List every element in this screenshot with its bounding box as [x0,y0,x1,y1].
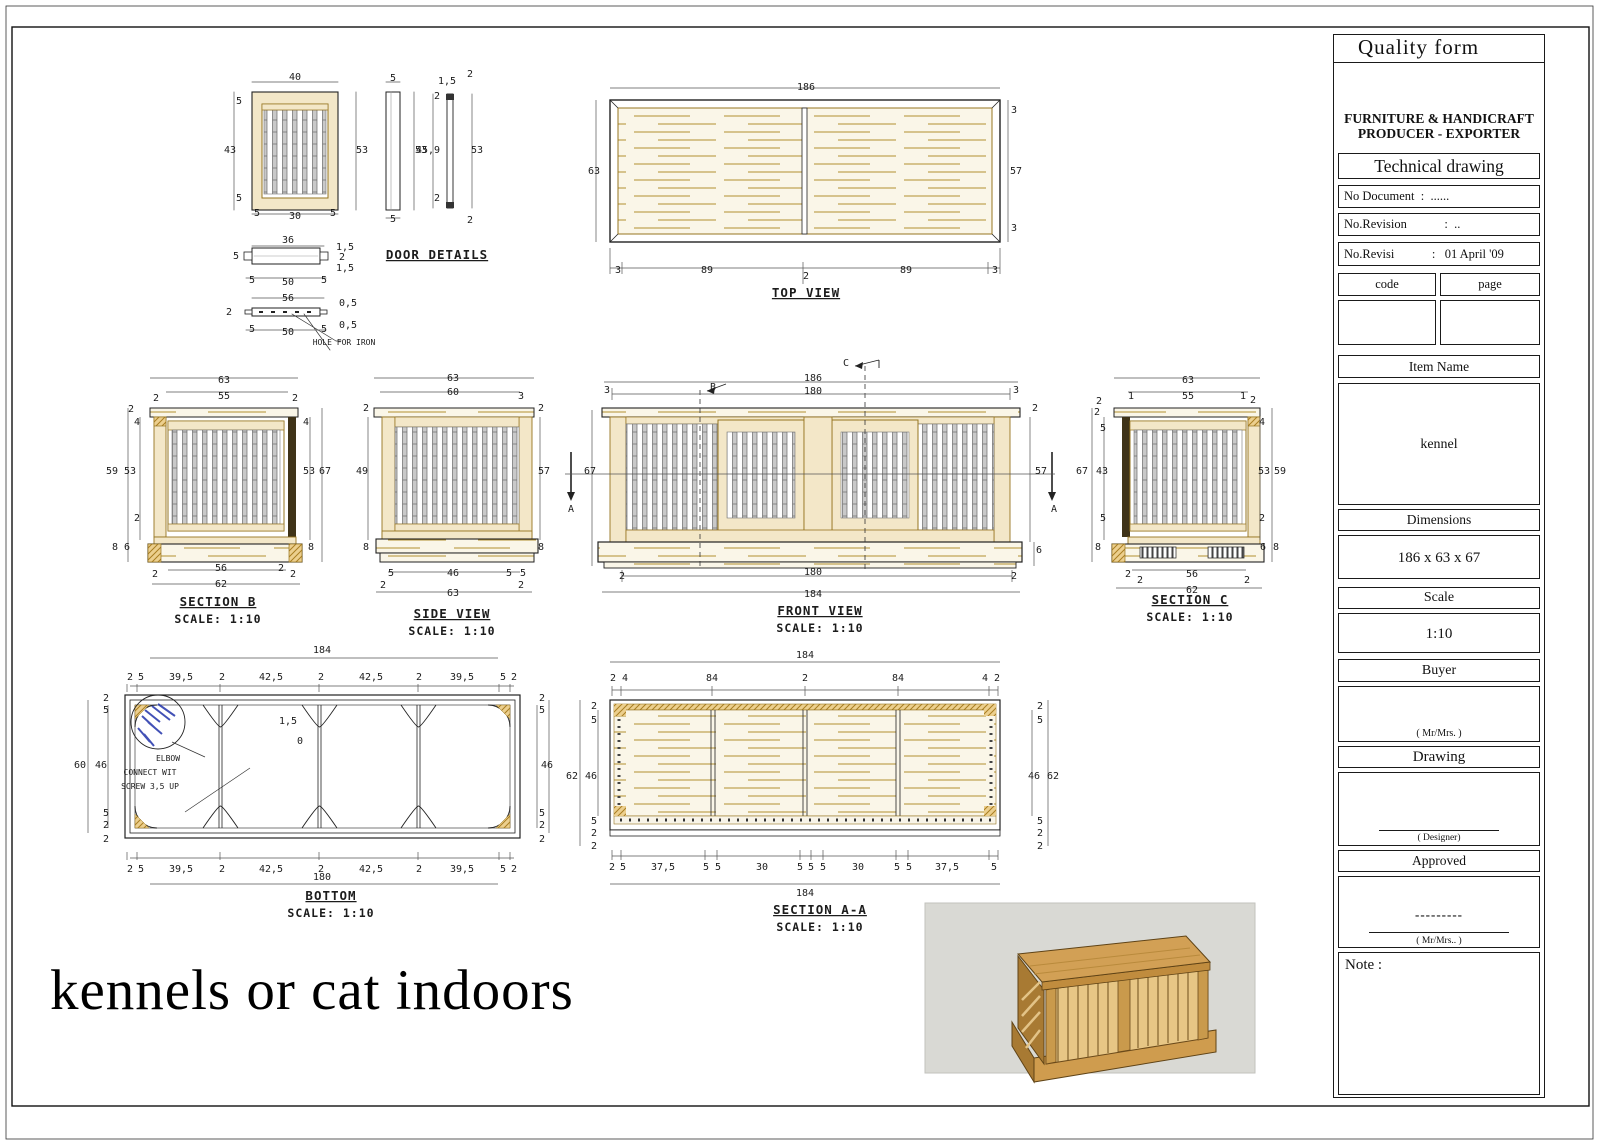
section-a-a-label: 30 [852,862,864,873]
side-view-label: SCALE: 1:10 [408,624,495,638]
no-revisi-row: No.Revisi : 01 April '09 [1338,242,1540,266]
bottom-label: 39,5 [450,864,474,875]
bottom-label: SCALE: 1:10 [287,906,374,920]
section-c-label: 2 [1094,407,1100,418]
title-block-header: Quality form [1334,35,1544,63]
door-details-label: 5 [236,96,242,107]
title-block: Quality form FURNITURE & HANDICRAFT PROD… [1333,34,1545,1098]
section-b-label: 6 [124,542,130,553]
side-view-label: 63 [447,373,459,384]
front-view-label: 186 [804,373,822,384]
code-label: code [1338,273,1436,296]
section-b-label: 2 [153,393,159,404]
bottom-label: 39,5 [450,672,474,683]
door-details-label: 43 [224,145,236,156]
section-b-label: SECTION B [180,594,257,609]
section-a-a-label: 5 [808,862,814,873]
section-b-label: 2 [128,404,134,415]
no-document-row: No Document : ...... [1338,185,1540,208]
section-a-a-label: 2 [994,673,1000,684]
door-details-label: 2 [434,193,440,204]
code-value-cell [1338,300,1436,345]
company-line1: FURNITURE & HANDICRAFT [1334,111,1544,126]
top-view-label: TOP VIEW [772,285,840,300]
section-a-a-drawing [580,662,1048,884]
side-view-drawing [368,378,540,592]
section-a-a-label: 5 [620,862,626,873]
top-view-label: 3 [615,265,621,276]
side-view-label: 5 [388,568,394,579]
door-details-label: 56 [282,293,294,304]
section-a-a-label: 5 [797,862,803,873]
section-a-a-label: 5 [820,862,826,873]
door-details-label: 2 [467,69,473,80]
section-a-a-label: 5 [715,862,721,873]
front-view-label: 3 [604,385,610,396]
approved-signature-line [1369,932,1509,933]
section-b-label: 2 [278,563,284,574]
section-b-label: 55 [218,391,230,402]
door-details-label: 5 [330,208,336,219]
section-a-a-label: 5 [591,715,597,726]
door-details-label: 2 [434,91,440,102]
bottom-label: 2 [103,820,109,831]
door-details-label: 5 [249,324,255,335]
bottom-label: 2 [511,672,517,683]
bottom-label: 2 [127,672,133,683]
bottom-label: SCREW 3,5 UP [121,782,179,791]
section-a-a-label: 184 [796,888,814,899]
bottom-label: 5 [103,808,109,819]
top-view-label: 3 [1011,105,1017,116]
side-view-label: 57 [538,466,550,477]
section-b-label: 2 [292,393,298,404]
front-view-label: 184 [804,589,822,600]
section-c-label: 4 [1259,417,1265,428]
door-details-label: DOOR DETAILS [386,247,488,262]
section-b-label: 2 [152,569,158,580]
section-c-label: SCALE: 1:10 [1146,610,1233,624]
section-b-label: 2 [290,569,296,580]
approved-hint: ( Mr/Mrs.. ) [1339,936,1539,946]
drawing-cell: ( Designer) [1338,772,1540,846]
bottom-label: 5 [500,864,506,875]
front-view-label: 3 [1013,385,1019,396]
door-details-label: 1,5 [336,263,354,274]
front-view-label: FRONT VIEW [777,603,862,618]
side-view-label: 2 [380,580,386,591]
side-view-label: 8 [538,542,544,553]
front-view-label: A [568,504,574,515]
section-a-a-label: 2 [1037,841,1043,852]
item-name-value: kennel [1338,383,1540,505]
approved-dashes: --------- [1339,907,1539,923]
door-details-label: 0,5 [339,320,357,331]
section-c-label: 56 [1186,569,1198,580]
door-details-label: 45,9 [416,145,440,156]
section-b-label: SCALE: 1:10 [174,612,261,626]
section-b-label: 53 [124,466,136,477]
section-a-a-label: 30 [756,862,768,873]
bottom-label: 5 [138,864,144,875]
front-view-label: 180 [804,567,822,578]
section-b-drawing [128,378,322,584]
door-details-label: 2 [467,215,473,226]
front-view-label: A [1051,504,1057,515]
section-b-label: 8 [308,542,314,553]
section-a-a-label: 46 [585,771,597,782]
top-view-label: 3 [1011,223,1017,234]
bottom-label: 42,5 [259,864,283,875]
section-c-label: 67 [1076,466,1088,477]
door-details-label: HOLE FOR IRON [313,338,376,347]
section-a-a-label: 62 [1047,771,1059,782]
bottom-label: CONNECT WIT [124,768,177,777]
bottom-label: 39,5 [169,672,193,683]
section-c-label: 62 [1186,585,1198,596]
section-b-label: 67 [319,466,331,477]
section-c-label: 53 [1258,466,1270,477]
section-c-label: 8 [1095,542,1101,553]
section-c-label: 1 [1240,391,1246,402]
bottom-label: 1,5 [279,716,297,727]
section-b-label: 8 [112,542,118,553]
approved-label: Approved [1338,850,1540,872]
section-c-label: 2 [1125,569,1131,580]
section-b-label: 2 [134,513,140,524]
bottom-label: 2 [539,820,545,831]
section-a-a-label: 2 [591,841,597,852]
door-details-label: 2 [226,307,232,318]
section-c-label: 2 [1259,513,1265,524]
door-details-label: 5 [233,251,239,262]
bottom-label: ELBOW [156,754,180,763]
top-view-label: 89 [701,265,713,276]
side-view-label: 5 [520,568,526,579]
bottom-label: 2 [127,864,133,875]
side-view-label: 2 [518,580,524,591]
bottom-label: 5 [138,672,144,683]
buyer-hint: ( Mr/Mrs. ) [1339,728,1539,739]
bottom-label: 2 [219,864,225,875]
bottom-label: 46 [541,760,553,771]
front-view-label: C [843,358,849,369]
technical-drawing-label: Technical drawing [1338,153,1540,179]
company-name: FURNITURE & HANDICRAFT PRODUCER - EXPORT… [1334,111,1544,141]
section-c-label: 5 [1100,513,1106,524]
section-a-a-label: 5 [1037,715,1043,726]
section-a-a-label: 184 [796,650,814,661]
drawing-sheet: DOOR DETAILS40543553530555351,52245,9532… [0,0,1599,1145]
drawing-label: Drawing [1338,746,1540,768]
side-view-label: 63 [447,588,459,599]
bottom-label: 46 [95,760,107,771]
section-a-a-label: 2 [1037,828,1043,839]
scale-value: 1:10 [1338,613,1540,653]
side-view-label: 49 [356,466,368,477]
section-a-a-label: 5 [1037,816,1043,827]
section-a-a-label: 5 [591,816,597,827]
door-details-label: 36 [282,235,294,246]
no-revision-row: No.Revision : .. [1338,213,1540,236]
bottom-label: 2 [511,864,517,875]
door-details-label: 5 [321,324,327,335]
front-view-label: 2 [1011,571,1017,582]
company-line2: PRODUCER - EXPORTER [1334,126,1544,141]
bottom-label: 42,5 [259,672,283,683]
bottom-label: 2 [416,672,422,683]
section-a-a-label: 46 [1028,771,1040,782]
bottom-label: 2 [103,834,109,845]
top-view-label: 2 [803,271,809,282]
door-details-label: 50 [282,327,294,338]
section-a-a-label: 37,5 [651,862,675,873]
section-a-a-label: 5 [894,862,900,873]
bottom-label: 42,5 [359,864,383,875]
section-c-label: 5 [1100,423,1106,434]
section-a-a-label: SECTION A-A [773,902,867,917]
section-a-a-label: 5 [703,862,709,873]
bottom-label: 5 [103,705,109,716]
section-a-a-label: 5 [906,862,912,873]
section-b-label: 56 [215,563,227,574]
front-view-label: 2 [619,571,625,582]
door-details-view [234,82,472,350]
kennel-3d-render [925,903,1255,1082]
door-details-label: 53 [356,145,368,156]
scale-label: Scale [1338,587,1540,609]
top-view-drawing [596,88,1008,284]
designer-signature-line [1379,830,1499,831]
page-label: page [1440,273,1540,296]
buyer-label: Buyer [1338,659,1540,682]
bottom-label: 180 [313,872,331,883]
section-c-label: 8 [1273,542,1279,553]
bottom-label: 184 [313,645,331,656]
section-c-label: 2 [1137,575,1143,586]
front-view-label: 6 [1036,545,1042,556]
section-a-a-label: 4 [622,673,628,684]
side-view-label: 2 [363,403,369,414]
buyer-cell: ( Mr/Mrs. ) [1338,686,1540,742]
section-c-label: 2 [1244,575,1250,586]
section-a-a-label: SCALE: 1:10 [776,920,863,934]
section-a-a-label: 2 [1037,701,1043,712]
front-view-label: 67 [584,466,596,477]
door-details-label: 5 [254,208,260,219]
section-c-label: 63 [1182,375,1194,386]
door-details-label: 5 [321,275,327,286]
front-view-label: B [710,382,716,393]
section-b-label: 53 [303,466,315,477]
section-a-a-label: 37,5 [935,862,959,873]
bottom-label: 2 [103,693,109,704]
door-details-label: 5 [236,193,242,204]
bottom-label: 2 [539,834,545,845]
door-details-label: 5 [249,275,255,286]
bottom-label: 2 [539,693,545,704]
section-a-a-label: 62 [566,771,578,782]
section-c-drawing [1092,378,1272,588]
bottom-label: 5 [539,705,545,716]
section-a-a-label: 84 [706,673,718,684]
door-details-label: 5 [390,73,396,84]
designer-hint: ( Designer) [1339,833,1539,843]
side-view-label: 60 [447,387,459,398]
top-view-label: 186 [797,82,815,93]
top-view-label: 3 [992,265,998,276]
door-details-label: 50 [282,277,294,288]
page-value-cell [1440,300,1540,345]
bottom-label: 2 [318,672,324,683]
bottom-label: 0 [297,736,303,747]
bottom-label: 42,5 [359,672,383,683]
side-view-label: 3 [518,391,524,402]
front-view-label: SCALE: 1:10 [776,621,863,635]
item-name-label: Item Name [1338,355,1540,378]
bottom-label: BOTTOM [305,888,356,903]
section-c-label: 55 [1182,391,1194,402]
section-a-a-label: 84 [892,673,904,684]
section-b-label: 62 [215,579,227,590]
dimensions-value: 186 x 63 x 67 [1338,535,1540,579]
top-view-label: 89 [900,265,912,276]
section-b-label: 4 [303,417,309,428]
section-a-a-label: 2 [609,862,615,873]
bottom-label: 5 [500,672,506,683]
bottom-label: 2 [219,672,225,683]
top-view-label: 57 [1010,166,1022,177]
section-c-label: 59 [1274,466,1286,477]
side-view-label: 46 [447,568,459,579]
section-b-label: 59 [106,466,118,477]
side-view-label: SIDE VIEW [414,606,491,621]
door-details-label: 30 [289,211,301,222]
side-view-label: 2 [538,403,544,414]
bottom-label: 2 [416,864,422,875]
note-cell: Note : [1338,952,1540,1095]
side-view-label: 5 [506,568,512,579]
approved-cell: --------- ( Mr/Mrs.. ) [1338,876,1540,948]
section-c-label: 1 [1128,391,1134,402]
section-c-label: 6 [1260,542,1266,553]
dimensions-label: Dimensions [1338,509,1540,531]
door-details-label: 5 [390,214,396,225]
bottom-label: 5 [539,808,545,819]
door-details-label: 40 [289,72,301,83]
bottom-label: 60 [74,760,86,771]
section-a-a-label: 2 [591,828,597,839]
section-c-label: 2 [1096,396,1102,407]
section-a-a-label: 2 [591,701,597,712]
section-a-a-label: 2 [802,673,808,684]
door-details-label: 2 [339,252,345,263]
section-b-label: 4 [134,417,140,428]
section-b-label: 63 [218,375,230,386]
section-c-label: 2 [1250,395,1256,406]
section-a-a-label: 4 [982,673,988,684]
door-details-label: 53 [471,145,483,156]
front-view-label: 2 [1032,403,1038,414]
door-details-label: 0,5 [339,298,357,309]
bottom-label: 39,5 [169,864,193,875]
side-view-label: 8 [363,542,369,553]
front-view-label: 180 [804,386,822,397]
top-view-label: 63 [588,166,600,177]
section-a-a-label: 5 [991,862,997,873]
section-a-a-label: 2 [610,673,616,684]
section-c-label: 43 [1096,466,1108,477]
front-view-label: 57 [1035,466,1047,477]
sheet-heading: kennels or cat indoors [50,958,574,1023]
door-details-label: 1,5 [438,76,456,87]
